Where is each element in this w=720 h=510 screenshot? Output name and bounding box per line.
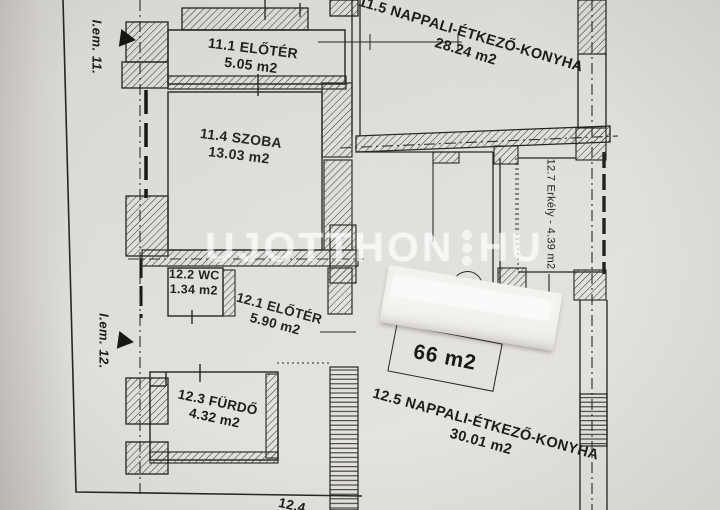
floorplan-photo: I.em. 11. I.em. 12. 11.1 ELŐTÉR 5.05 m2 …: [0, 0, 720, 510]
room-name: 12.7 Erkély - 4.39 m2: [543, 159, 556, 270]
room-area: 1.34 m2: [168, 282, 219, 299]
floor-marker-12: I.em. 12.: [97, 313, 112, 369]
room-label-12-7: 12.7 Erkély - 4.39 m2: [543, 159, 556, 270]
floorplan-drawing: [0, 0, 720, 510]
room-label-12-2: 12.2 WC 1.34 m2: [168, 267, 220, 299]
floor-marker-11-triangle-icon: [119, 29, 137, 49]
room-name: 12.2 WC: [169, 267, 220, 284]
divider-wall-11-12-left: [128, 250, 364, 266]
left-wall: [122, 0, 168, 497]
floor-marker-12-triangle-icon: [117, 331, 135, 351]
floor-marker-11: I.em. 11.: [90, 20, 105, 75]
central-wall-column: [328, 225, 358, 510]
